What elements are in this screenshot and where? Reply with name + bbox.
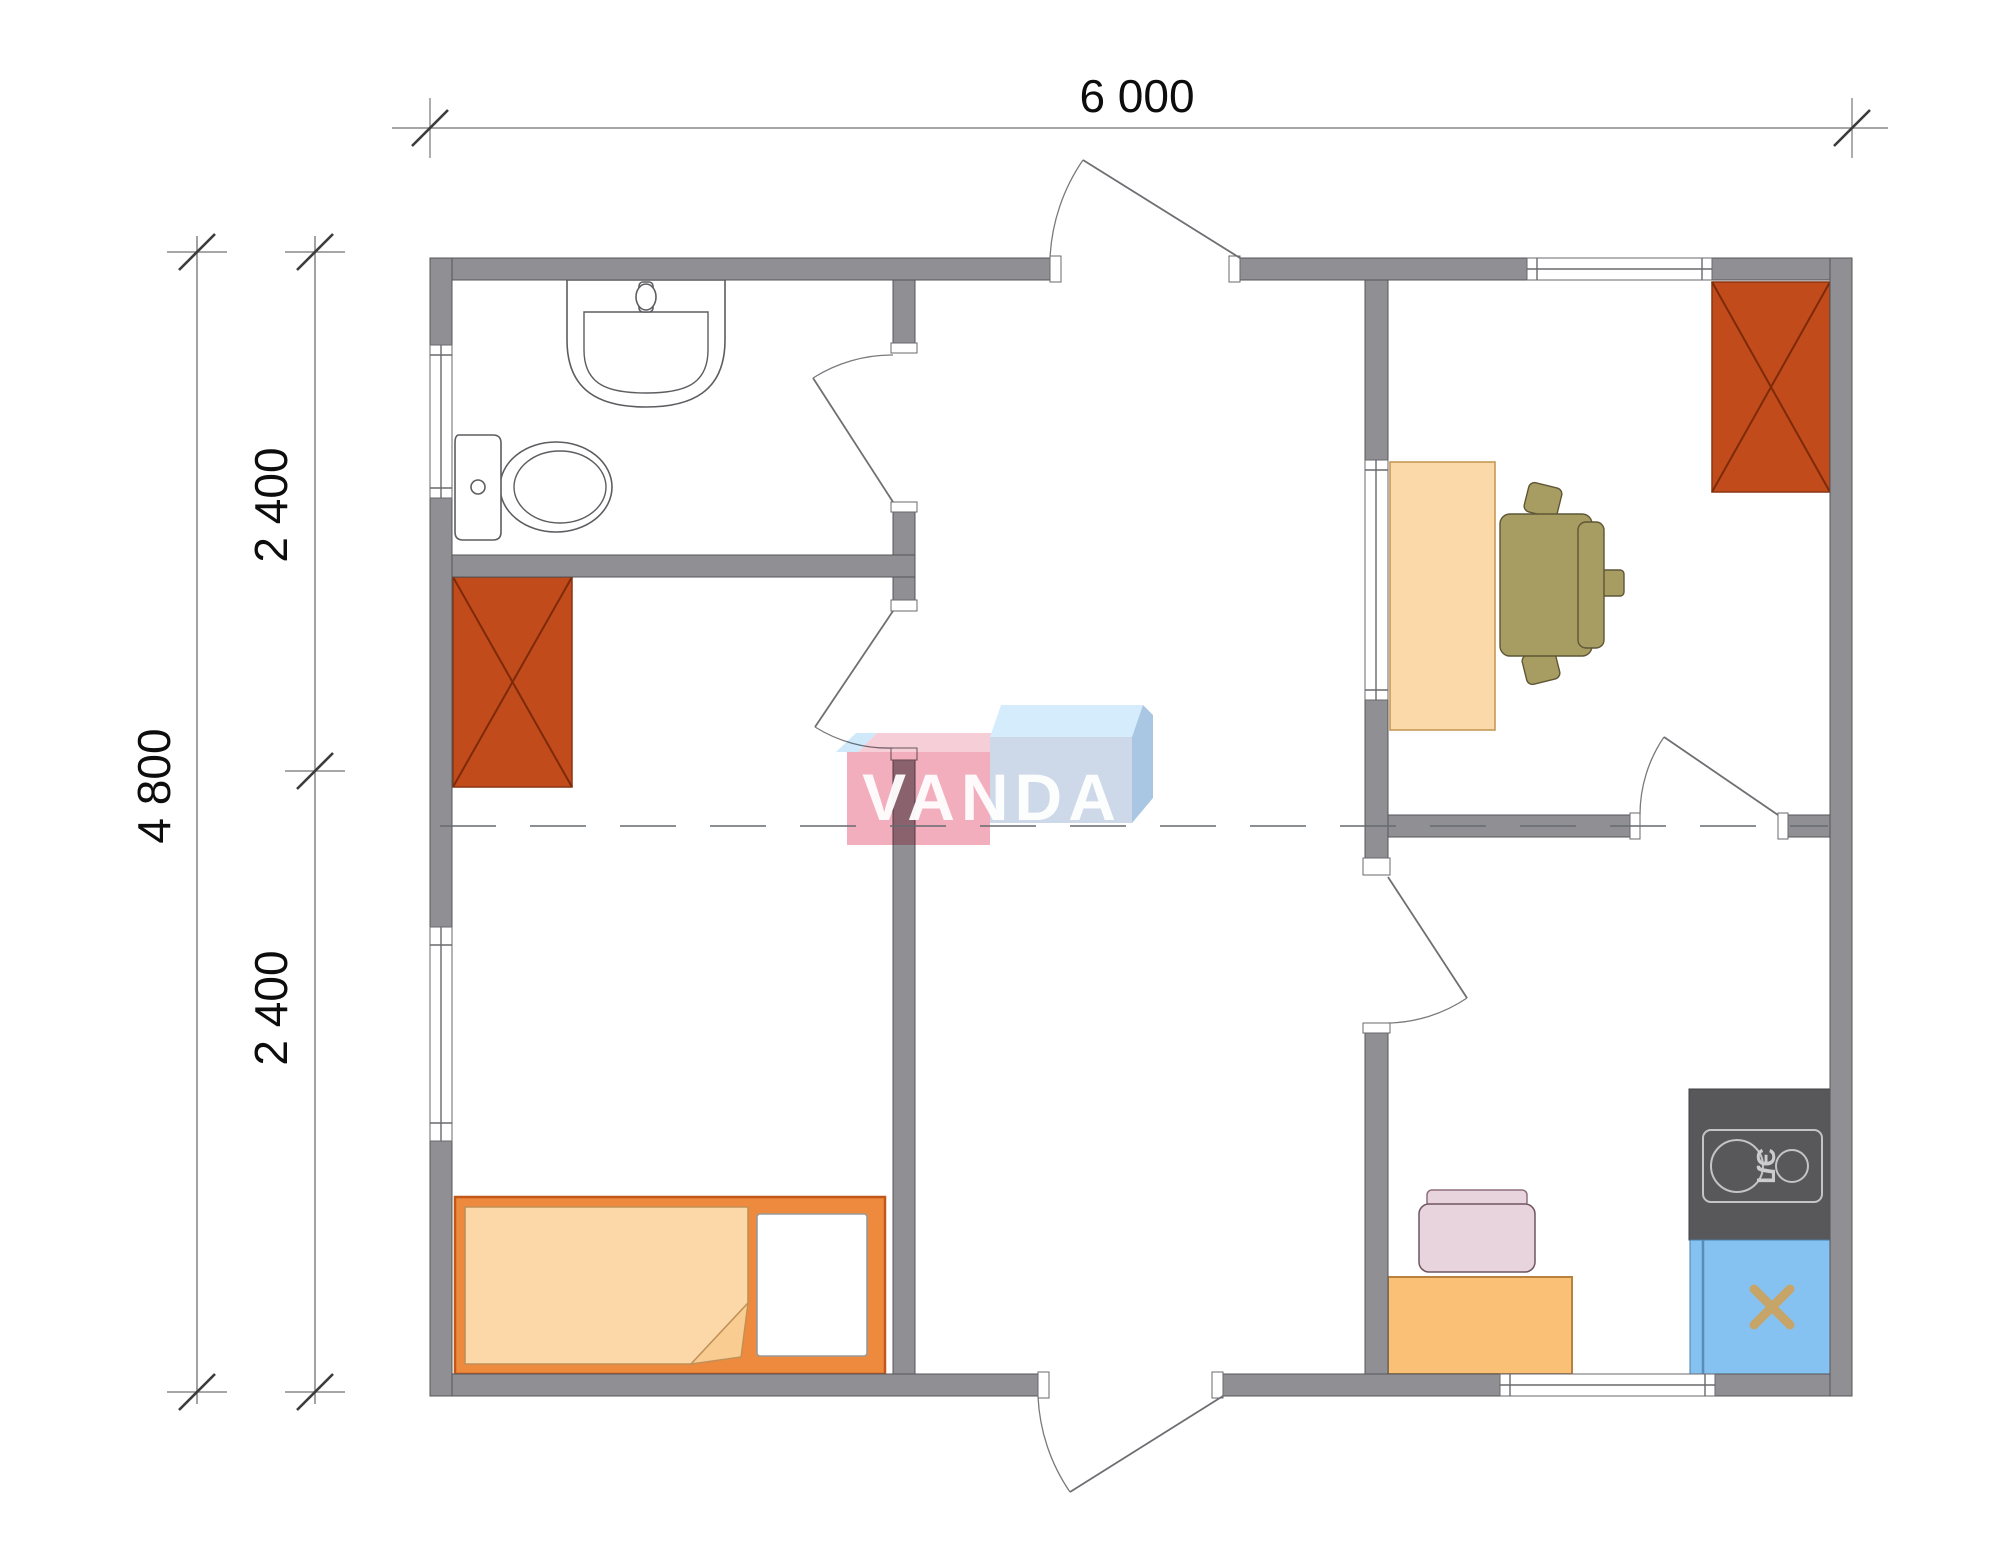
wall-center-1 (893, 280, 915, 353)
bed-blanket (465, 1207, 748, 1364)
door-bedroom (815, 611, 893, 748)
wall-bathroom-south (452, 555, 915, 577)
office-chair (1500, 481, 1624, 685)
wall-kitchen-west (1365, 1033, 1388, 1374)
wall-right (1830, 258, 1852, 1396)
dim-left-total-label: 4 800 (128, 728, 180, 843)
window-office-interior (1365, 460, 1388, 700)
wall-bottom-mid (1223, 1374, 1500, 1396)
window-top (1527, 258, 1712, 280)
watermark-text: VANDA (862, 760, 1122, 834)
watermark-blue-top (990, 705, 1143, 737)
wardrobe-office (1712, 282, 1830, 492)
window-left-bedroom (430, 927, 452, 1141)
wall-top-left (430, 258, 1050, 280)
door-bathroom (813, 355, 893, 502)
wall-left-2 (430, 498, 452, 927)
wall-office-south-1 (1388, 815, 1630, 837)
bed (455, 1197, 885, 1374)
stove-label: ЭЛ (1751, 1148, 1781, 1184)
wardrobe-hall (453, 577, 572, 787)
kitchen-chair (1419, 1190, 1535, 1272)
watermark-pink-top (858, 733, 1008, 752)
kitchen-table (1388, 1277, 1572, 1374)
watermark: VANDA (836, 705, 1153, 845)
dim-left-lower-label: 2 400 (245, 950, 297, 1065)
wall-left-1 (430, 258, 452, 345)
floor-plan: 6 000 4 800 2 400 2 400 (0, 0, 2000, 1563)
dim-top-label: 6 000 (1079, 70, 1194, 122)
dimension-left-halves: 2 400 2 400 (245, 234, 345, 1410)
window-left-bathroom (430, 345, 452, 498)
dimension-left-total: 4 800 (128, 234, 227, 1410)
door-entrance-bottom (1038, 1396, 1223, 1492)
dimension-top: 6 000 (392, 70, 1888, 158)
door-office (1640, 737, 1778, 815)
door-kitchen (1388, 877, 1467, 1023)
wall-top-mid (1240, 258, 1527, 280)
bed-pillow (757, 1214, 867, 1356)
wall-office-west-2 (1365, 700, 1388, 858)
window-bottom (1500, 1374, 1715, 1396)
toilet (455, 435, 612, 540)
office-desk (1390, 462, 1495, 730)
bathroom-sink (567, 280, 725, 407)
wall-office-west-1 (1365, 280, 1388, 460)
dim-left-upper-label: 2 400 (245, 447, 297, 562)
kitchen-sink (1690, 1240, 1830, 1374)
wall-left-3 (430, 1141, 452, 1396)
door-entrance-top (1050, 160, 1240, 258)
wall-center-3 (893, 760, 915, 1374)
kitchen-stove: ЭЛ (1689, 1089, 1830, 1240)
wall-bottom-left (430, 1374, 1038, 1396)
